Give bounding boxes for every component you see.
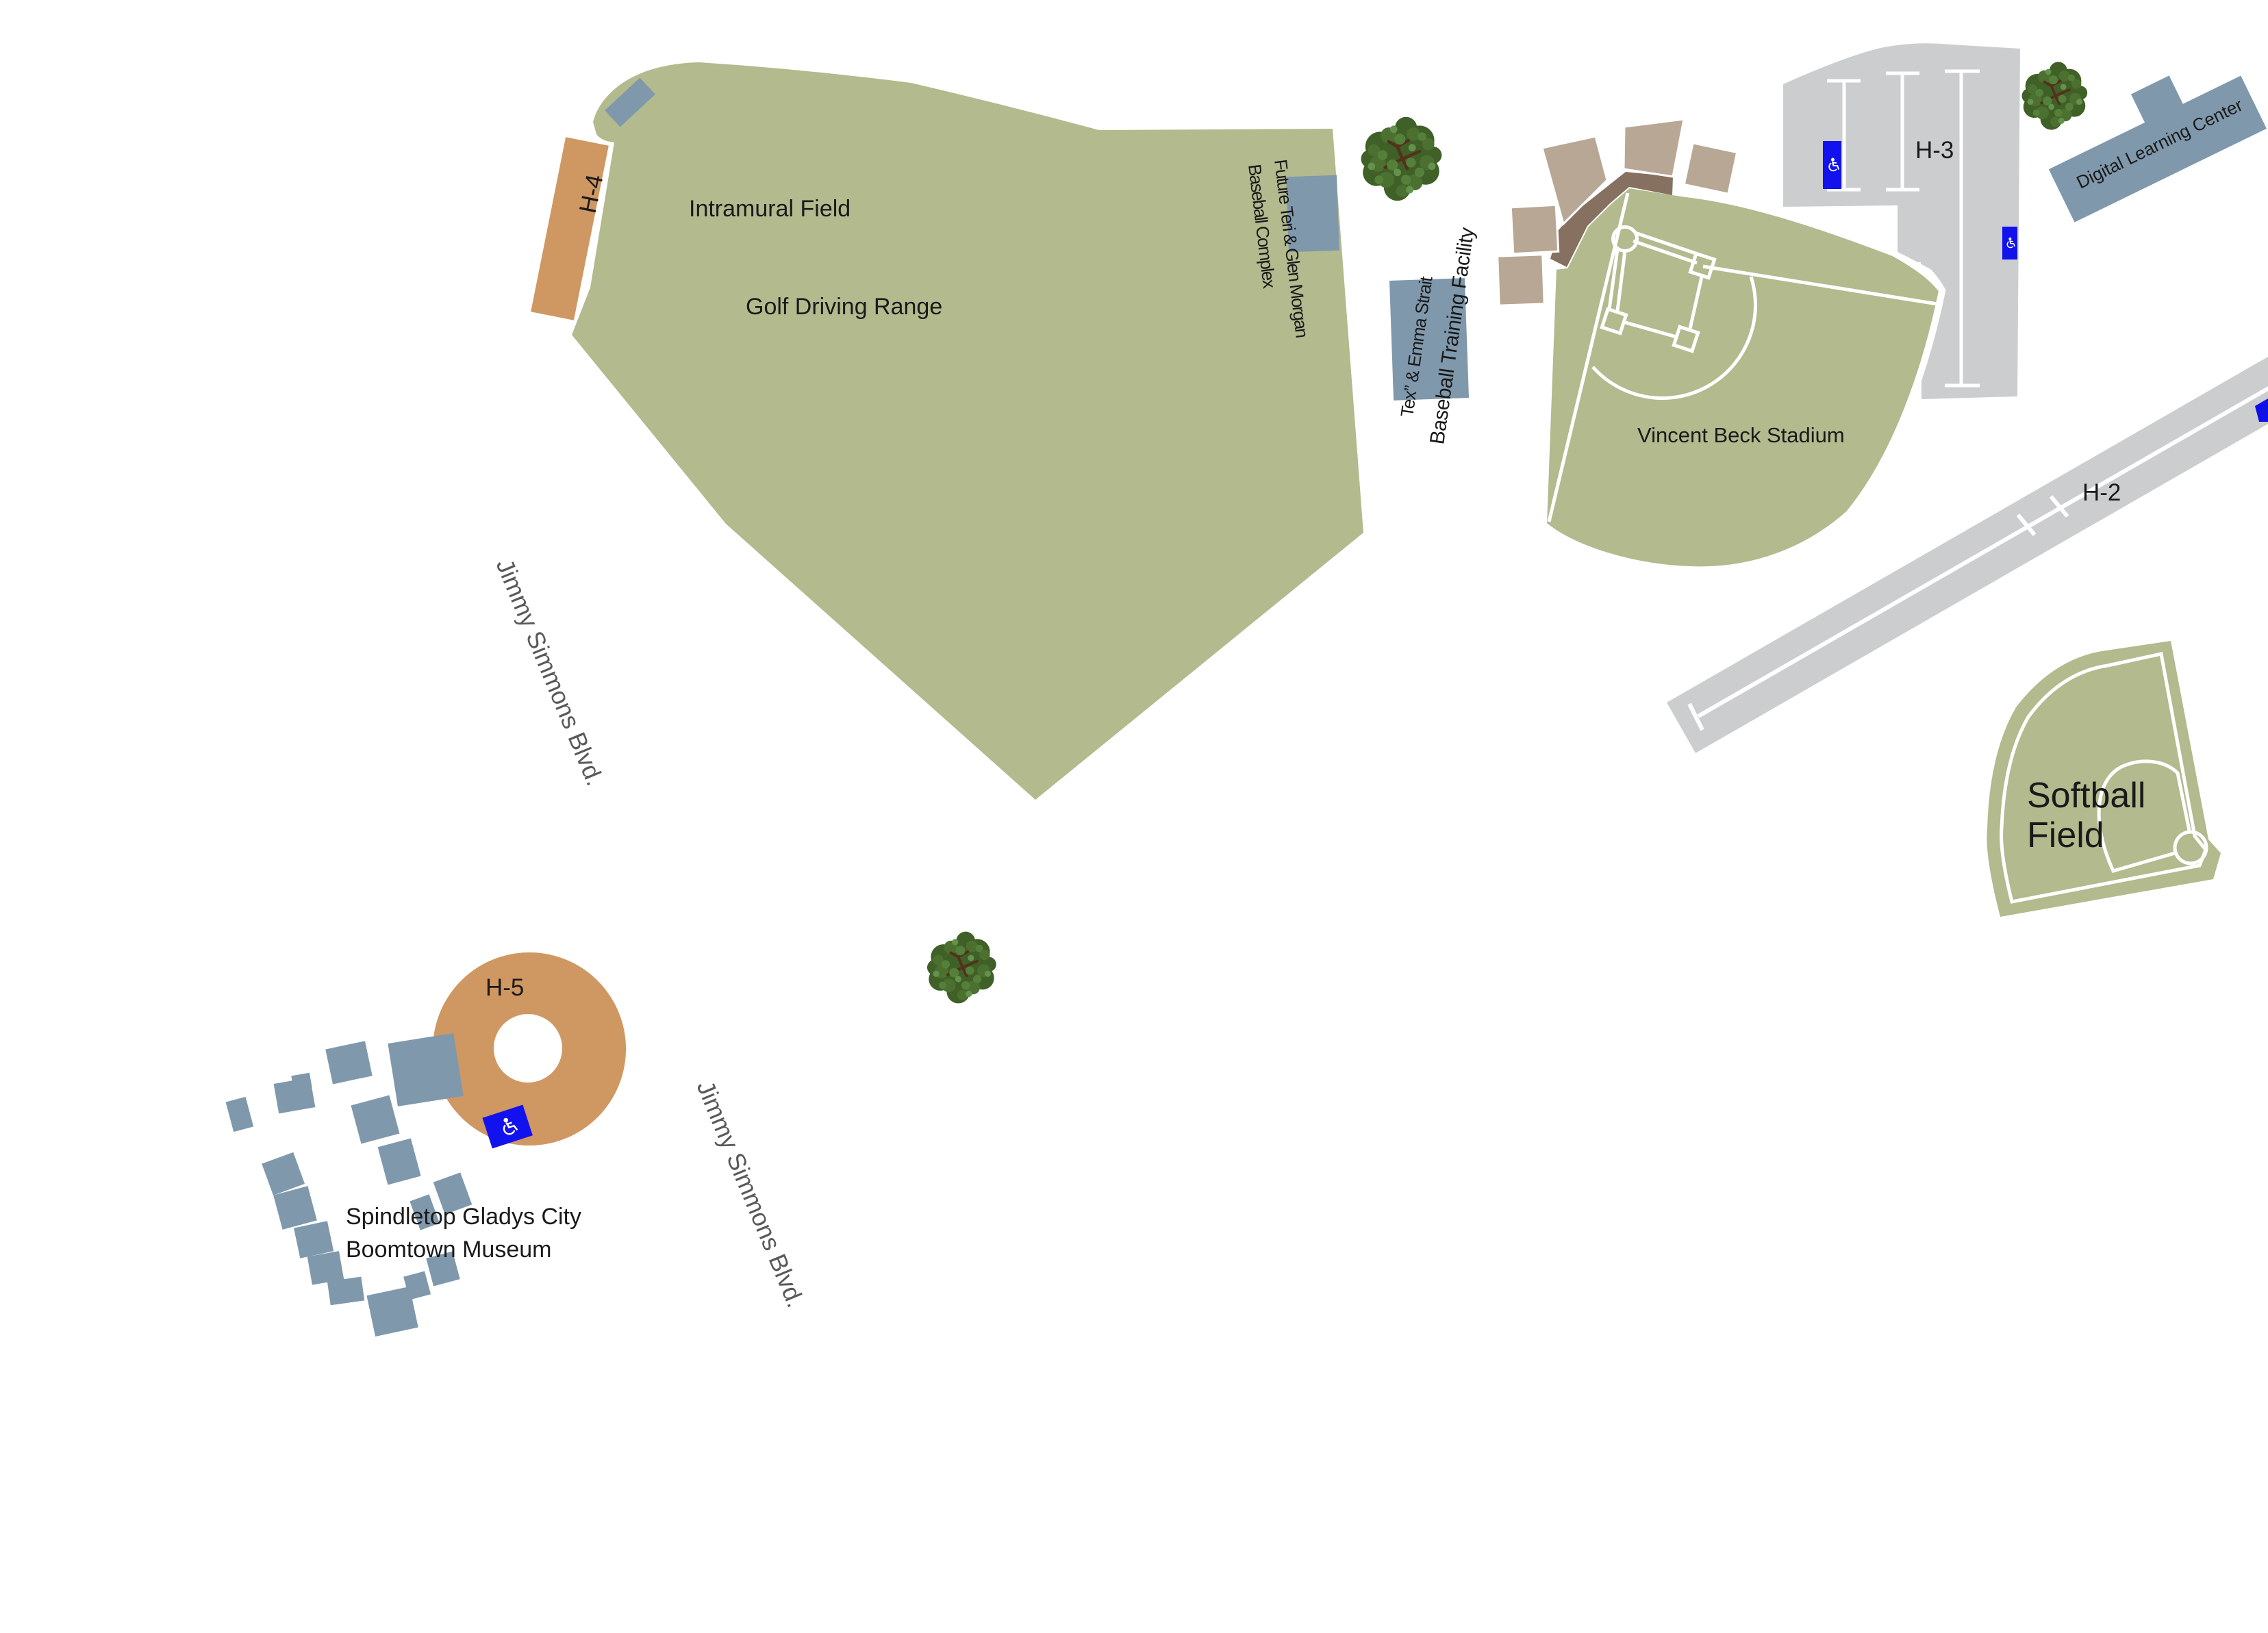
svg-text:H-5: H-5 [486, 974, 524, 1001]
svg-text:Softball: Softball [2027, 776, 2145, 815]
svg-text:Jimmy Simmons Blvd.: Jimmy Simmons Blvd. [491, 555, 609, 789]
svg-text:Boomtown Museum: Boomtown Museum [346, 1237, 551, 1263]
svg-text:Field: Field [2027, 815, 2104, 855]
svg-text:Spindletop Gladys City: Spindletop Gladys City [346, 1204, 581, 1230]
svg-text:Vincent Beck Stadium: Vincent Beck Stadium [1637, 423, 1845, 447]
svg-text:H-2: H-2 [2082, 479, 2121, 506]
svg-text:Golf Driving Range: Golf Driving Range [746, 294, 942, 320]
svg-text:Intramural Field: Intramural Field [689, 196, 850, 222]
svg-text:H-3: H-3 [1915, 137, 1954, 164]
svg-text:Jimmy Simmons Blvd.: Jimmy Simmons Blvd. [692, 1076, 810, 1311]
